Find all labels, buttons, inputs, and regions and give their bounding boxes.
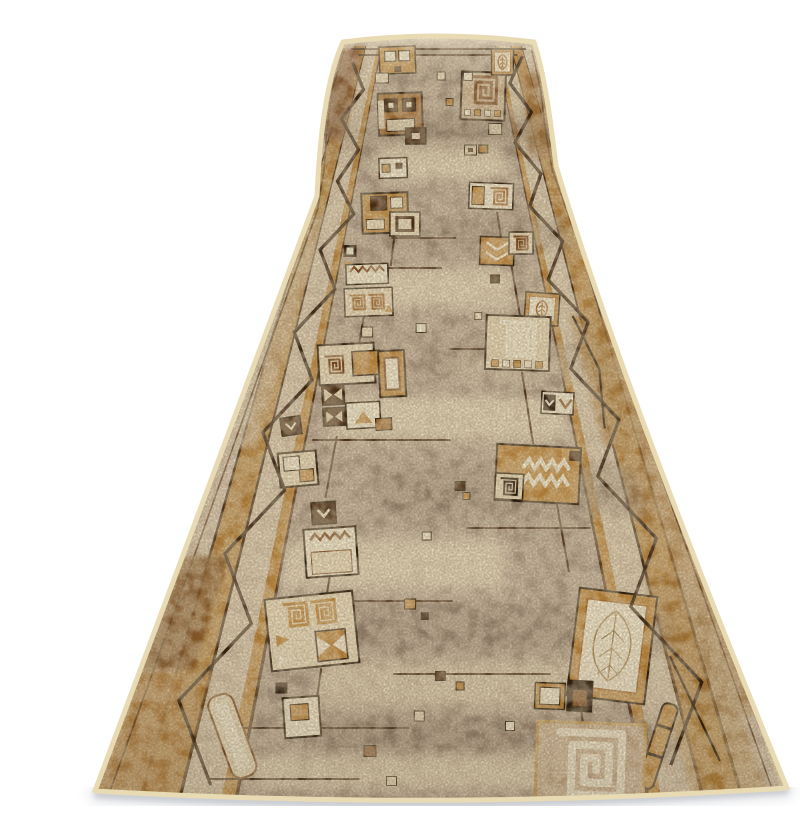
product-photo [40,16,800,816]
rug-runner-image [40,16,800,816]
depth-shading [80,616,800,811]
